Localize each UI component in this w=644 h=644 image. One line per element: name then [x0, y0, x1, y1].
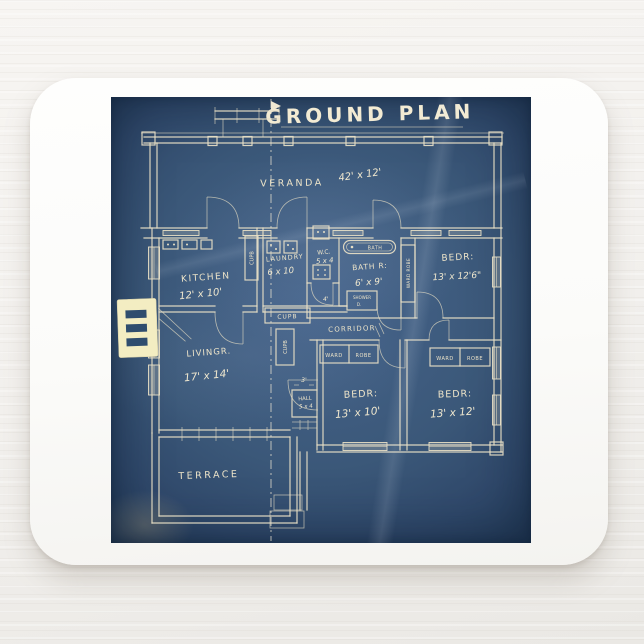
laundry-dims: 6 x 10: [267, 266, 294, 278]
kitchen-dims: 12' x 10': [179, 287, 223, 302]
bed-top-right-label: BEDR:: [441, 252, 474, 264]
wardrobe-vertical-label: WARD ROBE: [406, 258, 412, 288]
hall-steps: [292, 420, 317, 430]
hall-dims: 5 x 4: [299, 403, 314, 410]
cupboard-label: CUPB: [277, 313, 298, 321]
corridor-label: CORRIDOR: [328, 324, 376, 334]
hall-label: HALL: [298, 396, 312, 403]
wardrobe-strip: WARD ROBE: [401, 245, 415, 302]
living-dims: 17' x 14': [183, 368, 229, 385]
bed-bottom-right-dims: 13' x 12': [430, 405, 476, 420]
kitchen: CUPB KITCHEN 12' x 10': [159, 228, 263, 344]
wc: W.C. 5 x 4: [307, 228, 339, 318]
mousepad: GROUND PLAN: [30, 78, 608, 565]
blueprint-print: GROUND PLAN: [111, 97, 531, 543]
bed-bottom-left-label: BEDR:: [343, 388, 378, 401]
bed-bottom-left-dims: 13' x 10': [335, 405, 381, 421]
plan-title: GROUND PLAN: [265, 99, 475, 128]
bed-top-right-dims: 13' x 12'6": [432, 271, 481, 284]
wc-dims: 5 x 4: [316, 256, 334, 265]
door-arc: [417, 292, 443, 318]
ward-label: WARD: [325, 353, 342, 359]
bathroom: BATH BATH R: 6' x 9' SHOWER D. 4': [323, 238, 401, 330]
veranda-dims: 42' x 12': [338, 167, 382, 184]
house-top-wall: [141, 197, 502, 239]
veranda-label: VERANDA: [260, 177, 324, 189]
door-arc: [207, 197, 239, 228]
cupboard-label: CUPB: [283, 340, 289, 354]
kitchen-label: KITCHEN: [181, 271, 231, 284]
bathtub-label: BATH: [368, 246, 383, 252]
terrace: TERRACE: [152, 427, 297, 523]
door-arc: [373, 200, 401, 228]
shower-label: SHOWER: [353, 295, 371, 300]
door-arc: [379, 340, 405, 368]
laundry: LAUNDRY 6 x 10: [263, 241, 347, 312]
bath-label: BATH R:: [352, 261, 388, 272]
living-label: LIVINGR.: [186, 346, 231, 359]
shower-box: [347, 291, 377, 310]
cupboards: CUPB CUPB: [265, 308, 310, 365]
dim-four-ft: 4': [323, 296, 329, 303]
floor-plan-svg: GROUND PLAN: [111, 97, 531, 543]
bedroom-top-right: BEDR: 13' x 12'6": [415, 238, 482, 318]
shower-label-2: D.: [357, 302, 361, 307]
bedroom-bottom-left: WARD ROBE BEDR: 13' x 10': [317, 340, 407, 450]
door-arc: [311, 283, 333, 305]
dim-three-ft: 3': [301, 377, 307, 384]
backdrop: GROUND PLAN: [0, 0, 644, 644]
door-arc: [215, 312, 243, 344]
terrace-label: TERRACE: [177, 469, 239, 482]
wc-label: W.C.: [317, 248, 331, 256]
cupboard-label: CUPB: [250, 251, 256, 265]
bed-bottom-right-label: BEDR:: [438, 388, 473, 400]
robe-label: ROBE: [356, 353, 372, 359]
ward-label: WARD: [436, 356, 453, 362]
bath-dims: 6' x 9': [355, 277, 383, 289]
bedroom-bottom-right: WARD ROBE BEDR: 13' x 12': [430, 348, 490, 421]
robe-label: ROBE: [467, 356, 483, 362]
door-arc: [277, 197, 307, 228]
door-arc: [429, 320, 449, 340]
